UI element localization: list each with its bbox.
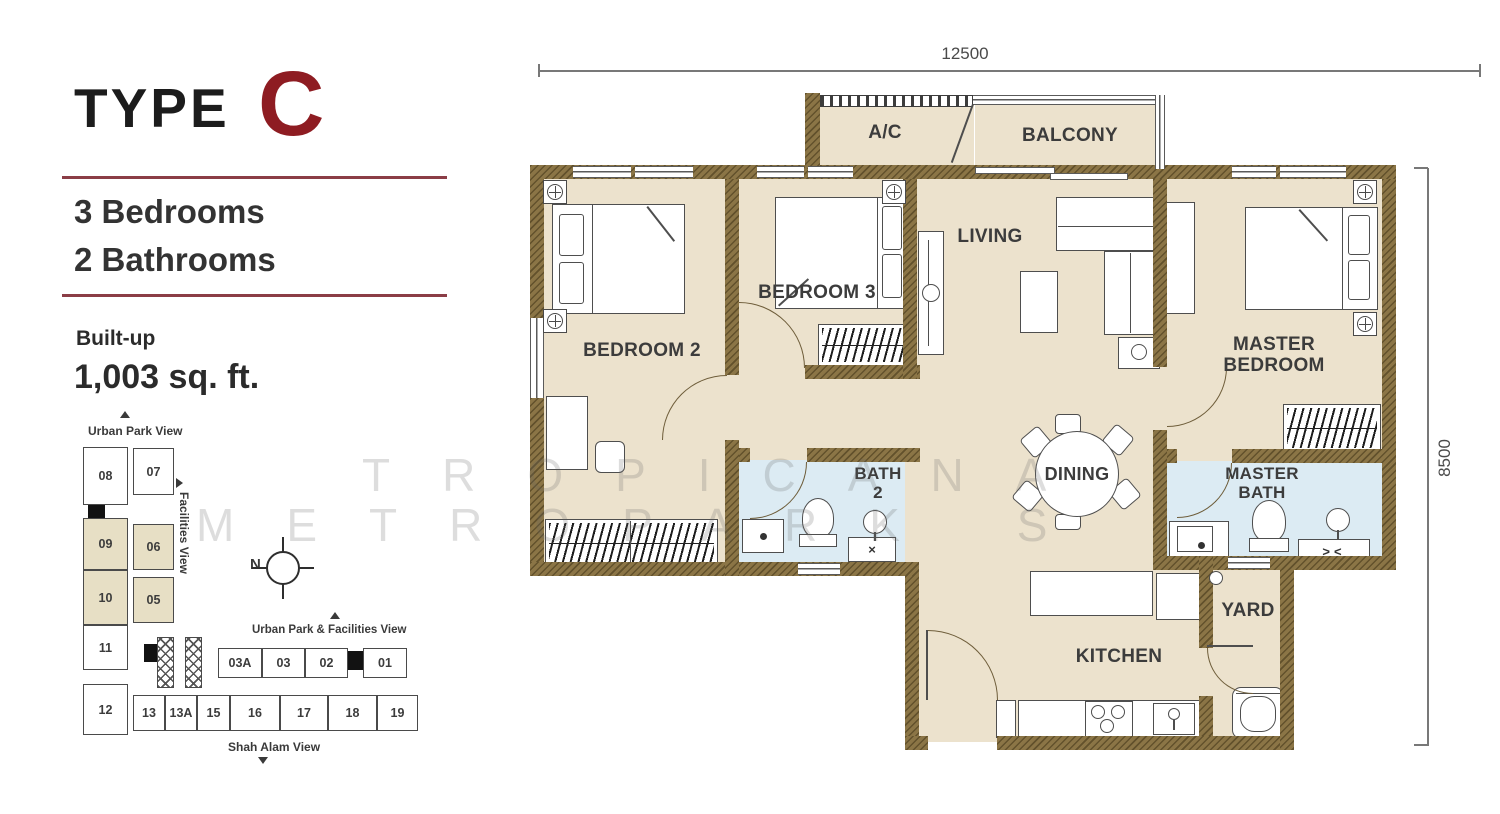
- lift-core: [88, 505, 105, 518]
- keyplan-unit: 12: [83, 684, 128, 735]
- column-circle: [886, 184, 902, 200]
- keyplan-unit: 07: [133, 448, 174, 495]
- room-label-bedroom3: BEDROOM 3: [752, 282, 882, 303]
- nightstand-symbol: [595, 441, 625, 473]
- room-label-living: LIVING: [935, 226, 1045, 247]
- dimension-line-top: [538, 70, 1481, 72]
- wall: [805, 93, 820, 169]
- window: [1228, 557, 1270, 569]
- window: [635, 166, 693, 178]
- dimension-line-right: [1427, 168, 1429, 746]
- column-marker-icon: [543, 180, 567, 204]
- room-label-bedroom2: BEDROOM 2: [577, 340, 707, 361]
- unit-number: 18: [346, 706, 360, 720]
- balcony-railing: [973, 95, 1165, 105]
- keyplan-unit: 01: [363, 648, 407, 678]
- wall: [997, 736, 1294, 750]
- dimension-tick: [1414, 744, 1428, 746]
- toilet-symbol: [802, 498, 834, 538]
- wall: [905, 576, 919, 750]
- column-circle: [1357, 316, 1373, 332]
- builtup-value: 1,003 sq. ft.: [74, 358, 259, 397]
- column-marker-icon: [543, 309, 567, 333]
- wall: [1167, 449, 1177, 463]
- fridge-symbol: [1156, 573, 1201, 620]
- wall: [725, 179, 739, 375]
- keyplan-unit: 17: [280, 695, 328, 731]
- window: [530, 318, 544, 398]
- wall: [739, 448, 750, 462]
- unit-number: 11: [99, 641, 112, 655]
- stair-core: [157, 637, 174, 688]
- wall: [1153, 430, 1167, 556]
- kitchen-counter-symbol: [996, 700, 1016, 738]
- pillow-symbol: [559, 214, 584, 256]
- lift-core: [348, 651, 363, 670]
- unit-number: 19: [391, 706, 405, 720]
- keyplan-unit: 11: [83, 625, 128, 670]
- washer-panel-line: [1236, 693, 1280, 694]
- unit-number: 13: [142, 706, 156, 720]
- toilet-tank-symbol: [1249, 538, 1289, 552]
- tap-icon: [1198, 542, 1205, 549]
- stair-core: [185, 637, 202, 688]
- keyplan-unit: 02: [305, 648, 348, 678]
- unit-number: 05: [147, 593, 161, 607]
- keyplan-unit-highlighted: 10: [83, 570, 128, 625]
- room-label-dining: DINING: [1045, 464, 1110, 485]
- keyplan-unit: 13: [133, 695, 165, 731]
- sofa-cushion-line: [1058, 226, 1156, 227]
- sink-drain-icon: [1168, 708, 1180, 720]
- window: [757, 166, 804, 178]
- window: [573, 166, 631, 178]
- type-letter: C: [258, 52, 324, 157]
- wall: [1280, 570, 1294, 750]
- unit-number: 13A: [170, 706, 193, 720]
- sofa-cushion-line: [1130, 253, 1131, 333]
- tap-icon: [1337, 530, 1339, 539]
- coffee-table-symbol: [1020, 271, 1058, 333]
- keyplan-unit: 16: [230, 695, 280, 731]
- side-table-lamp-icon: [1131, 344, 1147, 360]
- burner-icon: [1111, 705, 1125, 719]
- sofa-symbol: [1104, 251, 1158, 335]
- pillow-symbol: [882, 254, 902, 298]
- window: [1280, 166, 1346, 178]
- bed-headline: [1342, 208, 1343, 309]
- basin-symbol: [863, 510, 887, 534]
- sink-tap-icon: [1173, 720, 1175, 730]
- unit-number: 02: [320, 656, 334, 670]
- wall: [903, 179, 917, 379]
- divider: [62, 294, 447, 297]
- unit-number: 12: [99, 703, 113, 717]
- toilet-symbol: [1252, 500, 1286, 542]
- room-label-kitchen: KITCHEN: [1060, 646, 1178, 667]
- keyplan-unit: 03A: [218, 648, 262, 678]
- pillow-symbol: [1348, 215, 1370, 255]
- keyplan-unit-highlighted: 09: [83, 518, 128, 570]
- keyplan-unit: 15: [197, 695, 230, 731]
- pillow-symbol: [1348, 260, 1370, 300]
- kitchen-counter-symbol: [1030, 571, 1153, 616]
- column-circle: [1357, 184, 1373, 200]
- keyplan-unit: 13A: [165, 695, 197, 731]
- unit-number: 03: [277, 656, 291, 670]
- room-label-bath2: BATH 2: [852, 464, 904, 502]
- unit-number: 08: [99, 469, 113, 483]
- keyplan-unit: 18: [328, 695, 377, 731]
- north-label: N: [250, 556, 261, 573]
- window: [808, 166, 853, 178]
- view-label-top: Urban Park View: [88, 424, 183, 438]
- wall: [1199, 556, 1213, 648]
- arrow-up-icon: [330, 612, 340, 619]
- wall: [807, 448, 920, 462]
- balcony-railing: [1155, 95, 1165, 169]
- floor-trap-icon: [1209, 571, 1223, 585]
- dresser-symbol: [546, 396, 588, 470]
- window: [1232, 166, 1276, 178]
- wall: [905, 736, 928, 750]
- column-marker-icon: [1353, 312, 1377, 336]
- tv-speaker-icon: [922, 284, 940, 302]
- bed-headline: [592, 205, 593, 313]
- wall: [1199, 696, 1213, 736]
- wall: [1153, 179, 1167, 367]
- dimension-tick: [1479, 64, 1481, 77]
- vanity-mark: ×: [868, 542, 876, 557]
- unit-number: 16: [248, 706, 262, 720]
- window: [798, 563, 840, 575]
- builtup-label: Built-up: [76, 327, 155, 351]
- tap-icon: [874, 532, 876, 541]
- column-marker-icon: [882, 180, 906, 204]
- divider: [62, 176, 447, 179]
- basin-symbol: [1326, 508, 1350, 532]
- room-label-master-bedroom: MASTER BEDROOM: [1214, 334, 1334, 377]
- door-leaf-yard: [1207, 645, 1253, 647]
- arrow-down-icon: [258, 757, 268, 764]
- ac-louver: [820, 95, 973, 107]
- unit-number: 09: [99, 537, 113, 551]
- wardrobe-divider: [630, 521, 631, 564]
- unit-number: 06: [147, 540, 161, 554]
- room-label-master-bath: MASTER BATH: [1222, 464, 1302, 502]
- sliding-door: [975, 167, 1055, 174]
- dimension-width: 12500: [928, 44, 1002, 64]
- room-label-ac: A/C: [855, 122, 915, 143]
- dimension-tick: [538, 64, 540, 77]
- door-leaf-entry: [926, 630, 928, 700]
- keyplan-unit: 03: [262, 648, 305, 678]
- sliding-door: [1050, 173, 1128, 180]
- view-label-bottom: Shah Alam View: [228, 740, 320, 754]
- wall: [1382, 179, 1396, 570]
- bedrooms-text: 3 Bedrooms: [74, 193, 265, 231]
- room-label-balcony: BALCONY: [1010, 125, 1130, 146]
- pillow-symbol: [559, 262, 584, 304]
- arrow-up-icon: [120, 411, 130, 418]
- column-marker-icon: [1353, 180, 1377, 204]
- arrow-right-icon: [176, 478, 183, 488]
- bath-cabinet-inner: [1177, 526, 1213, 552]
- unit-number: 15: [207, 706, 221, 720]
- keyplan-unit: 19: [377, 695, 418, 731]
- pillow-symbol: [882, 206, 902, 250]
- toilet-tank-symbol: [799, 534, 837, 547]
- sofa-symbol: [1056, 197, 1158, 251]
- burner-icon: [1100, 719, 1114, 733]
- wall: [725, 440, 739, 576]
- column-circle: [547, 184, 563, 200]
- room-label-yard: YARD: [1212, 600, 1284, 621]
- dimension-tick: [1414, 167, 1428, 169]
- wall: [1153, 556, 1396, 570]
- unit-number: 17: [297, 706, 311, 720]
- vanity-symbol: ×: [848, 537, 896, 562]
- dining-table-symbol: DINING: [1035, 431, 1119, 517]
- compass-icon: [266, 551, 300, 585]
- washer-drum-icon: [1240, 696, 1276, 732]
- unit-number: 10: [99, 591, 113, 605]
- dresser-symbol: [1163, 202, 1195, 314]
- floorplan-page: TYPE C 3 Bedrooms 2 Bathrooms Built-up 1…: [0, 0, 1500, 814]
- unit-number: 03A: [229, 656, 252, 670]
- unit-number: 07: [147, 465, 161, 479]
- wardrobe-hangers: [549, 523, 714, 562]
- wardrobe-hangers: [1287, 408, 1377, 448]
- view-label-middle: Urban Park & Facilities View: [252, 624, 406, 636]
- dimension-height: 8500: [1435, 426, 1455, 490]
- unit-number: 01: [378, 656, 392, 670]
- keyplan-unit-highlighted: 05: [133, 577, 174, 623]
- lift-core: [144, 644, 157, 662]
- keyplan-unit-highlighted: 06: [133, 524, 174, 570]
- wardrobe-hangers: [822, 328, 904, 362]
- type-label: TYPE: [74, 76, 230, 140]
- view-label-side: Facilities View: [177, 492, 191, 574]
- wall: [1232, 449, 1382, 463]
- burner-icon: [1091, 705, 1105, 719]
- bathrooms-text: 2 Bathrooms: [74, 241, 276, 279]
- keyplan-unit: 08: [83, 447, 128, 505]
- tap-icon: [760, 533, 767, 540]
- column-circle: [547, 313, 563, 329]
